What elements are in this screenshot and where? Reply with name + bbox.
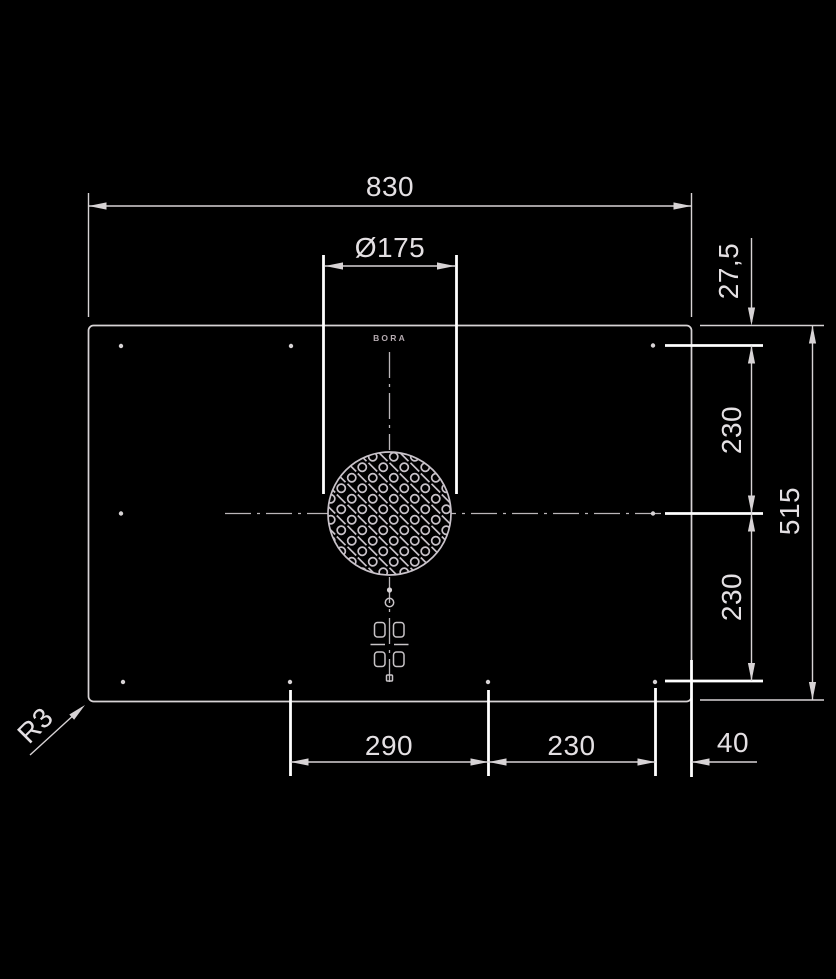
label-bottom-left-segment: 290 [365,730,413,761]
brand-logo: BORA [373,333,407,343]
label-right-lower-segment: 230 [716,573,747,621]
label-top-offset: 27,5 [713,243,744,300]
dimension-right-chain: 27,5 230 230 515 [665,238,824,700]
label-inlet-diameter: Ø175 [355,232,426,263]
label-bottom-right-segment: 40 [717,727,749,758]
corner-radius-callout: R3 [11,701,85,755]
label-overall-depth: 515 [774,487,805,535]
label-corner-radius: R3 [11,701,59,749]
extractor-grille [326,450,453,577]
label-overall-width: 830 [366,171,414,202]
drawing-canvas: 830 Ø175 27,5 230 [0,0,836,979]
technical-drawing: 830 Ø175 27,5 230 [0,0,836,979]
label-right-upper-segment: 230 [716,406,747,454]
dimension-bottom-chain: 290 230 40 [291,660,758,777]
label-bottom-center-segment: 230 [547,730,595,761]
